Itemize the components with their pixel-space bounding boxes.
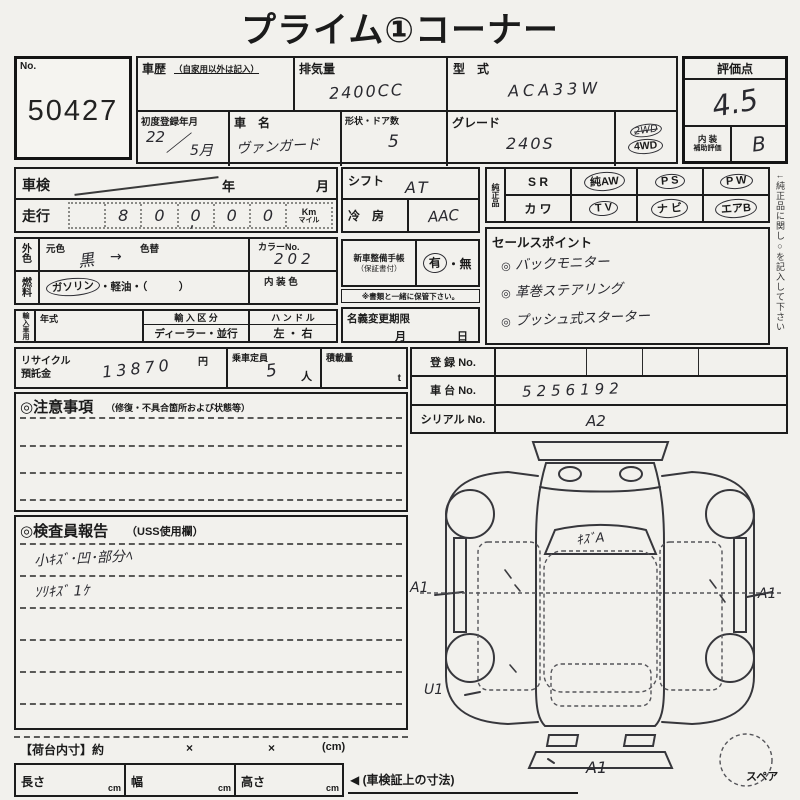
car-name-cell: 車 名 ヴァンガード [230,112,342,166]
shaken-mileage-block: 車検 年 月 走行 8 0 0 0 0 Km マイル , [14,167,338,233]
history-note: （自家用以外は記入） [174,63,259,75]
spare-tire-label: スペア [746,768,778,784]
sales-points-box: セールスポイント ◎ バックモニター ◎ 革巻ステアリング ◎ プッシュ式スター… [485,227,770,345]
load-cell: 積載量 t [322,349,406,387]
load-unit: t [398,373,401,384]
import-car-label: 輸入車用 [16,311,36,341]
first-registration-cell: 初度登録年月 22 ／ 5月 [138,112,230,166]
ac-value-cell: AAC [409,200,478,231]
mileage-row: 走行 8 0 0 0 0 Km マイル , [16,200,336,231]
lot-number-box: No. 50427 [14,56,132,160]
rule-line [20,671,402,673]
first-registration-slash: ／ [166,126,188,158]
recycle-label-2: 預託金 [21,365,51,380]
sales-bullet: ◎ [501,315,511,328]
import-year-cell: 年式 [36,311,144,341]
damage-mark-top: A2 [586,412,606,430]
bed-dims-label: 【荷台内寸】約 [20,741,104,758]
doors-label: 形状・ドア数 [345,114,399,127]
car-name-value: ヴァンガード [236,134,321,158]
damage-mark-windshield: ｷｽﾞA [575,527,605,549]
equip-sr: S R [506,169,572,194]
drivetrain-selected: 4WD [628,138,664,155]
registration-number-row: 登 録 No. [412,349,786,377]
length-unit: cm [108,783,121,793]
model-code-label: 型 式 [453,60,489,77]
inspector-report-box: ◎検査員報告 （USS使用欄） 小ｷｽﾞ･凹･部分ﾍ ｿﾘｷｽﾞ 1ｹ [14,515,408,730]
chassis-number-value: 5256192 [496,377,786,403]
fuel-selected: ガソリン [45,276,100,298]
inspector-report-note: （USS使用欄） [126,523,204,539]
chassis-number-row: 車 台 No. 5256192 [412,377,786,405]
rule-line [20,575,402,577]
dims-reference-note: ◀ (車検証上の寸法) [350,771,455,788]
capacity-label: 乗車定員 [232,351,268,364]
rule-line [348,792,578,794]
doors-cell: 形状・ドア数 5 [342,112,448,166]
sales-points-header: セールスポイント [492,232,592,251]
handle-label: ハ ン ド ル [250,311,336,325]
shift-label: シフト [348,172,384,189]
model-code-cell: 型 式 ACA33W [448,58,676,110]
height-label: 高さ [241,773,265,790]
rating-header: 評価点 [685,59,785,80]
bed-dims-x2: × [268,741,275,755]
vehicle-header-table: 車歴 （自家用以外は記入） 排気量 2400CC 型 式 ACA33W 初度登録… [136,56,678,164]
color-fuel-block: 外 色 元色 色替 黒 → カラーNo. 202 燃 料 ガソリン・軽油・（ ） [14,237,338,305]
registration-number-label: 登 録 No. [412,349,496,375]
displacement-label: 排気量 [299,60,335,77]
displacement-value: 2400CC [329,80,405,103]
load-label: 積載量 [326,351,353,364]
grade-label: グレード [452,114,500,131]
recycle-deposit-cell: リサイクル 預託金 13870 円 [16,349,228,387]
recycle-row: リサイクル 預託金 13870 円 乗車定員 5 人 積載量 t [14,347,408,389]
rule-line [20,703,402,705]
model-code-value: ACA33W [508,78,602,100]
divider [642,349,643,375]
grade-cell: グレード 240S [448,112,616,166]
vehicle-damage-diagram [410,430,790,790]
sales-point-item: ◎ 革巻ステアリング [501,277,624,301]
margin-vertical-note: ←純正品に関し○を記入して下さい [774,170,787,445]
height-cell: 高さ cm [236,765,342,795]
transfer-day-label: 日 [457,328,468,344]
sales-point-item: ◎ プッシュ式スターター [501,304,651,329]
chassis-number-label: 車 台 No. [412,377,496,403]
ac-value: AAC [427,205,459,225]
doors-value: 5 [388,132,399,152]
shaken-month-label: 月 [316,176,329,195]
bed-dims-x1: × [186,741,193,755]
rule-line [20,639,402,641]
damage-mark-bottom: A1 [586,758,607,777]
equip-airbag: エアB [704,196,768,221]
interior-rating-label: 内 装 補助評価 [685,127,732,161]
caution-box: ◎注意事項 （修復・不具合箇所および状態等） [14,392,408,512]
odometer-comma: , [190,212,195,231]
service-book-block: 新車整備手帳 （保証書付） 有 ・ 無 [341,239,480,287]
repaint-label: 色替 [140,241,159,255]
auction-sheet: プライム①コーナー No. 50427 車歴 （自家用以外は記入） 排気量 24… [0,0,800,800]
equip-tv: T V [572,196,638,221]
equip-aw: 純AW [572,169,638,194]
sales-bullet: ◎ [501,287,511,300]
shift-value: AT [405,178,431,197]
color-arrow: → [110,249,122,265]
rating-box: 評価点 4.5 内 装 補助評価 B [682,56,788,164]
equip-leather: カ ワ [506,196,572,221]
fuel-label: 燃 料 [16,272,40,305]
shift-ac-block: シフト AT 冷 房 AAC [341,167,480,233]
ac-label: 冷 房 [348,207,384,224]
odometer-boxes: 8 0 0 0 0 Km マイル , [68,202,333,229]
ac-label-cell: 冷 房 [343,200,409,231]
caution-note: （修復・不具合箇所および状態等） [106,401,250,414]
dimension-row: 長さ cm 幅 cm 高さ cm [14,763,344,797]
history-label: 車歴 [142,60,166,77]
exterior-color-cell: 元色 色替 黒 → [40,239,248,270]
divider [586,349,587,375]
shaken-label: 車検 [22,175,50,195]
rule-line [20,543,402,545]
color-number-value: 202 [274,250,315,268]
history-cell: 車歴 （自家用以外は記入） [138,58,295,110]
odometer-digit [70,204,104,227]
import-class-label: 輸 入 区 分 [144,311,248,325]
service-book-no: 無 [460,255,472,272]
original-color-label: 元色 [46,241,65,255]
fuel-options-rest: ・軽油・（ ） [100,281,189,293]
transfer-month-label: 月 [395,328,406,344]
interior-rating-grade: B [732,127,785,161]
rule-line [20,445,402,447]
shift-row: シフト AT [343,169,478,200]
inspector-note-line-1: 小ｷｽﾞ･凹･部分ﾍ [34,545,133,570]
rule-line [20,607,402,609]
shaken-handwritten-stroke [74,176,218,196]
equipment-grid: 純正品 S R 純AW P S P W カ ワ T V ナ ビ エアB [485,167,770,223]
length-cell: 長さ cm [16,765,126,795]
lot-number-label: No. [20,61,36,72]
equip-pw: P W [704,169,768,194]
length-label: 長さ [21,773,45,790]
interior-color-cell: 内 装 色 [248,272,336,305]
shaken-row: 車検 年 月 [16,169,336,200]
rule-line [14,736,408,738]
handle-cell: ハ ン ド ル 左 ・ 右 [250,311,336,341]
equip-ps: P S [638,169,704,194]
damage-mark-left: A1 [410,580,428,596]
sales-point-item: ◎ バックモニター [501,250,610,274]
lot-number-value: 50427 [17,95,129,128]
service-book-separator: ・ [447,255,459,272]
first-registration-month: 5月 [190,140,213,160]
damage-mark-bottom-left: U1 [424,682,443,698]
height-unit: cm [326,783,339,793]
fuel-options-cell: ガソリン・軽油・（ ） [40,272,248,305]
odometer-digit: 0 [249,204,285,227]
grade-value: 240S [506,134,555,153]
damage-mark-right: A1 [758,586,776,602]
import-car-block: 輸入車用 年式 輸 入 区 分 ディーラー・並行 ハ ン ド ル 左 ・ 右 [14,309,338,343]
rating-score: 4.5 [709,82,760,123]
equipment-label: 純正品 [487,169,506,221]
registration-number-value [496,349,786,375]
import-class-cell: 輸 入 区 分 ディーラー・並行 [144,311,250,341]
equip-navi: ナ ビ [638,196,704,221]
capacity-cell: 乗車定員 5 人 [228,349,322,387]
rule-line [20,499,402,501]
service-book-choice: 有 ・ 無 [417,241,478,285]
rule-line [20,472,402,474]
capacity-value: 5 [265,360,279,381]
inspector-note-line-2: ｿﾘｷｽﾞ 1ｹ [34,580,90,602]
page-title: プライム①コーナー [150,2,650,53]
width-label: 幅 [131,773,143,790]
transfer-deadline-label: 名義変更期限 [347,311,410,326]
service-book-label: 新車整備手帳 （保証書付） [343,241,417,285]
width-unit: cm [218,783,231,793]
capacity-unit: 人 [301,368,312,384]
divider [698,349,699,375]
caution-header: ◎注意事項 [20,396,93,417]
drivetrain-crossed: 2WD [629,122,662,139]
recycle-yen: 円 [198,353,208,368]
bed-dims-cm: (cm) [322,741,345,753]
documents-note: ※書類と一緒に保管下さい。 [341,289,480,303]
rule-line [20,417,402,419]
sales-bullet: ◎ [501,260,511,273]
width-cell: 幅 cm [126,765,236,795]
interior-color-label: 内 装 色 [264,274,298,288]
original-color-value: 黒 [76,246,95,272]
serial-number-value [496,406,786,432]
shaken-year-label: 年 [222,176,235,195]
recycle-value: 13870 [101,355,174,381]
serial-number-label: シリアル No. [412,406,496,432]
odometer-digit: 0 [213,204,249,227]
service-book-yes: 有 [423,252,448,274]
exterior-color-label: 外 色 [16,239,40,270]
transfer-deadline-block: 名義変更期限 月 日 [341,307,480,343]
odometer-digit: 0 [140,204,176,227]
first-registration-year: 22 [146,128,165,146]
inspector-report-header: ◎検査員報告 [20,520,108,541]
import-class-value: ディーラー・並行 [144,325,248,341]
handle-value: 左 ・ 右 [250,325,336,341]
color-number-cell: カラーNo. 202 [248,239,336,270]
odometer-digit: 8 [104,204,140,227]
drivetrain-cell: 2WD 4WD [616,112,676,166]
mileage-label: 走行 [22,206,50,226]
import-year-label: 年式 [40,312,58,325]
odometer-unit: Km マイル [285,204,331,227]
displacement-cell: 排気量 2400CC [295,58,448,110]
car-name-label: 車 名 [234,114,270,131]
